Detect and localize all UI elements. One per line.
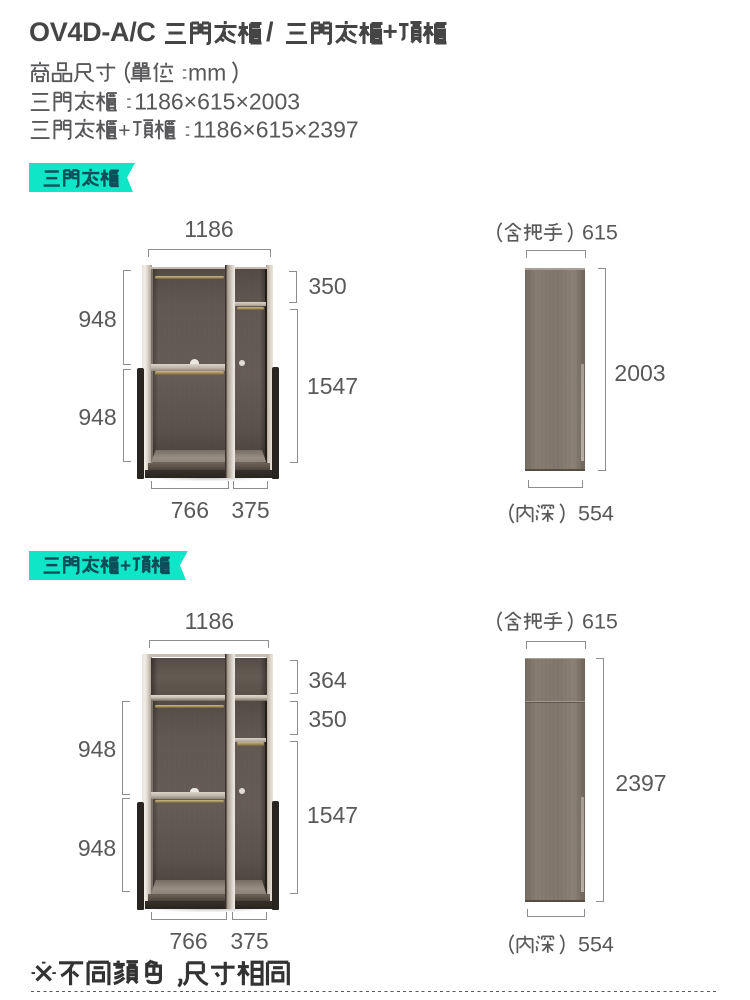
svg-text:554: 554 xyxy=(578,503,614,525)
svg-text:554: 554 xyxy=(578,934,614,956)
svg-text:615: 615 xyxy=(582,611,618,633)
svg-text:1186×615×2397: 1186×615×2397 xyxy=(193,118,359,143)
svg-text:mm: mm xyxy=(188,61,226,85)
svg-text:1186×615×2003: 1186×615×2003 xyxy=(134,90,300,115)
svg-text:+: + xyxy=(120,556,131,577)
svg-text:615: 615 xyxy=(582,222,618,244)
svg-text:+: + xyxy=(118,120,130,143)
